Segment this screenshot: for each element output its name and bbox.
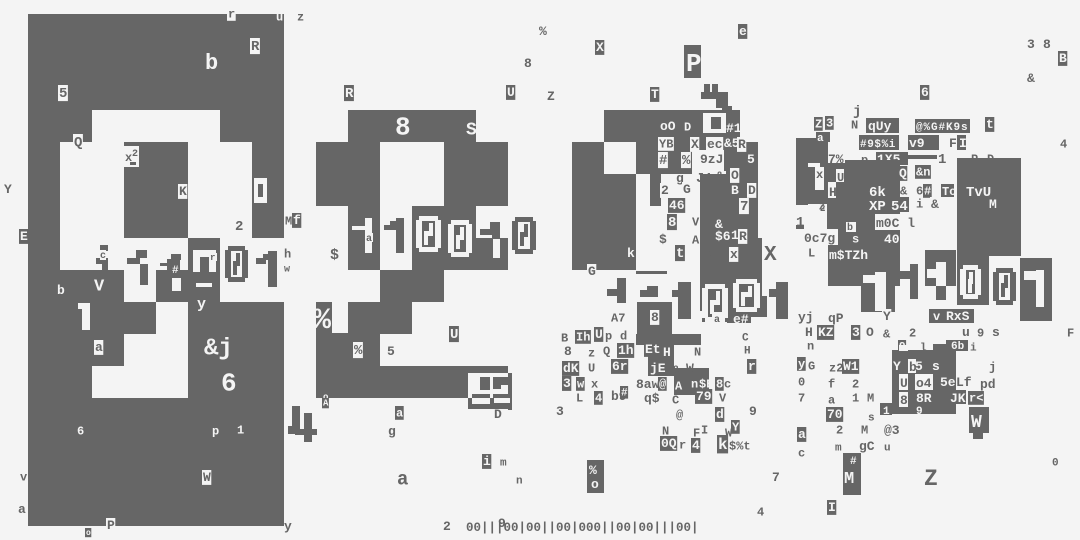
svg-text:h: h — [284, 247, 291, 261]
svg-text:ec: ec — [707, 137, 723, 152]
svg-text:1: 1 — [731, 228, 739, 243]
svg-text:Ih: Ih — [576, 330, 590, 344]
svg-text:8: 8 — [668, 215, 676, 231]
svg-text:6: 6 — [221, 368, 237, 398]
svg-text:9zJ: 9zJ — [700, 152, 723, 167]
svg-text:dK: dK — [563, 361, 579, 376]
svg-text:r: r — [748, 359, 756, 374]
svg-text:$%t: $%t — [729, 439, 751, 453]
svg-text:0: 0 — [798, 375, 805, 389]
svg-text:w: w — [577, 377, 585, 391]
svg-text:S: S — [466, 121, 477, 141]
svg-text:2: 2 — [661, 183, 669, 198]
svg-text:k: k — [718, 436, 728, 454]
svg-text:i: i — [483, 454, 491, 469]
svg-text:1: 1 — [938, 152, 946, 168]
svg-text:a: a — [817, 133, 824, 145]
svg-text:r<: r< — [969, 391, 983, 405]
svg-text:8: 8 — [716, 377, 723, 391]
svg-text:x: x — [816, 168, 823, 182]
svg-text:e: e — [739, 24, 747, 39]
svg-text:4: 4 — [692, 438, 700, 453]
svg-text:#: # — [924, 184, 931, 198]
svg-text:&: & — [1027, 71, 1035, 86]
svg-text:4: 4 — [1060, 137, 1067, 151]
svg-text:8aw: 8aw — [636, 377, 660, 392]
svg-text:To: To — [942, 185, 956, 199]
svg-text:M: M — [285, 214, 292, 228]
svg-text:u: u — [884, 443, 891, 455]
svg-text:#: # — [621, 388, 628, 400]
svg-text:c: c — [798, 446, 805, 460]
svg-text:A: A — [675, 379, 683, 393]
svg-text:m: m — [500, 458, 507, 470]
svg-text:c: c — [724, 377, 731, 391]
svg-text:0: 0 — [1052, 458, 1059, 470]
svg-text:Z: Z — [815, 117, 822, 131]
svg-text:b: b — [57, 283, 65, 298]
svg-text:#: # — [659, 153, 667, 169]
svg-text:q$: q$ — [644, 391, 660, 406]
svg-text:gC: gC — [859, 439, 875, 454]
svg-text:X: X — [691, 137, 699, 152]
svg-text:M: M — [867, 391, 874, 405]
svg-text:3: 3 — [1027, 37, 1035, 52]
svg-text:G: G — [683, 182, 691, 197]
svg-text:W: W — [971, 413, 982, 433]
svg-text:Z: Z — [924, 466, 938, 492]
svg-text:7: 7 — [740, 199, 748, 215]
svg-text:U: U — [900, 376, 908, 391]
svg-text:#1: #1 — [726, 121, 742, 136]
svg-text:XP: XP — [869, 199, 886, 215]
svg-text:X: X — [764, 244, 777, 267]
svg-text:@3: @3 — [884, 423, 900, 438]
svg-text:O: O — [731, 168, 739, 183]
svg-text:3: 3 — [563, 376, 571, 391]
svg-text:m: m — [835, 443, 842, 455]
svg-text:7: 7 — [798, 391, 805, 405]
svg-text:R: R — [738, 137, 746, 152]
svg-text:r: r — [228, 7, 235, 21]
svg-text:Z: Z — [819, 203, 825, 214]
svg-text:KZ: KZ — [818, 325, 834, 340]
svg-text:U: U — [837, 171, 844, 185]
svg-text:p: p — [605, 329, 612, 343]
svg-text:p: p — [212, 424, 219, 438]
svg-text:H: H — [744, 346, 751, 358]
svg-text:P: P — [107, 518, 115, 533]
svg-text:M: M — [844, 470, 854, 489]
svg-text:8: 8 — [900, 393, 908, 408]
svg-text:E: E — [20, 229, 28, 244]
svg-text:f: f — [293, 213, 301, 228]
svg-text:T: T — [651, 87, 659, 102]
svg-text:k: k — [627, 246, 635, 261]
svg-text:%: % — [682, 153, 691, 169]
svg-text:o4: o4 — [916, 376, 932, 391]
svg-text:r: r — [679, 438, 686, 452]
svg-text:d: d — [620, 329, 627, 343]
svg-text:40: 40 — [884, 232, 900, 247]
svg-text:Y: Y — [893, 359, 901, 374]
svg-text:yj: yj — [798, 310, 814, 325]
svg-text:v: v — [933, 310, 940, 324]
svg-text:B: B — [1059, 51, 1067, 66]
svg-text:@: @ — [676, 408, 683, 422]
svg-text:1: 1 — [237, 423, 244, 437]
svg-text:%: % — [589, 463, 597, 478]
svg-text:#: # — [172, 265, 179, 277]
svg-text:5: 5 — [59, 86, 67, 102]
svg-text:i: i — [970, 343, 977, 355]
svg-text:5: 5 — [915, 359, 923, 374]
svg-text:y: y — [798, 357, 805, 371]
svg-text:Et: Et — [645, 342, 661, 357]
svg-text:qP: qP — [828, 311, 844, 326]
svg-text:a: a — [828, 393, 835, 407]
svg-text:c: c — [100, 251, 106, 262]
svg-text:B: B — [561, 331, 568, 345]
svg-text:f: f — [828, 377, 835, 391]
svg-text:A: A — [692, 233, 700, 247]
svg-text:z: z — [588, 346, 595, 360]
svg-text:3: 3 — [852, 325, 860, 340]
svg-text:9: 9 — [749, 404, 757, 419]
svg-text:$: $ — [659, 232, 667, 247]
svg-text:M: M — [861, 423, 868, 437]
svg-text:y: y — [197, 296, 206, 313]
svg-text:R: R — [345, 86, 354, 102]
svg-text:2: 2 — [836, 423, 843, 437]
svg-text:V: V — [94, 278, 105, 297]
svg-text:O: O — [866, 325, 874, 340]
svg-text:v9: v9 — [909, 136, 925, 151]
svg-text:G: G — [588, 264, 596, 279]
svg-text:Q: Q — [603, 344, 610, 358]
svg-text:v: v — [20, 470, 27, 484]
svg-text:70: 70 — [827, 407, 843, 422]
svg-text:U: U — [450, 327, 458, 343]
svg-text:B: B — [731, 183, 739, 198]
svg-text:P: P — [686, 49, 702, 79]
svg-text:a: a — [798, 427, 806, 442]
svg-text:JK: JK — [950, 391, 966, 406]
svg-text:6: 6 — [916, 184, 923, 198]
svg-text:8R: 8R — [916, 391, 932, 406]
svg-text:9: 9 — [916, 406, 923, 418]
svg-text:U: U — [507, 85, 515, 100]
svg-text:d: d — [716, 407, 724, 422]
svg-text:#9$%i: #9$%i — [860, 139, 896, 151]
svg-text:D: D — [684, 120, 691, 134]
svg-text:A: A — [323, 399, 329, 409]
svg-text:o: o — [591, 477, 599, 492]
svg-text:1h: 1h — [618, 343, 634, 358]
svg-text:7: 7 — [772, 470, 780, 485]
svg-text:&j: &j — [204, 336, 233, 363]
svg-text:2: 2 — [852, 377, 859, 391]
svg-text:2: 2 — [708, 248, 715, 262]
svg-text:8: 8 — [651, 310, 659, 325]
svg-text:t: t — [986, 117, 994, 132]
svg-text:F: F — [1067, 326, 1074, 340]
svg-text:%: % — [313, 304, 332, 338]
svg-text:&n: &n — [916, 165, 930, 179]
svg-text:C: C — [672, 393, 679, 407]
svg-text:6r: 6r — [612, 359, 628, 374]
svg-text:8: 8 — [564, 344, 572, 359]
svg-text:H: H — [805, 325, 813, 340]
svg-text:6: 6 — [921, 85, 929, 100]
svg-text:a: a — [95, 340, 103, 355]
svg-text:n: n — [807, 339, 814, 353]
svg-text:V: V — [692, 215, 700, 229]
svg-text:a: a — [396, 406, 403, 420]
svg-text:2: 2 — [235, 219, 243, 235]
svg-text:2: 2 — [443, 519, 451, 534]
svg-text:0Q: 0Q — [661, 436, 677, 451]
svg-text:8: 8 — [395, 112, 411, 142]
svg-text:#: # — [850, 456, 857, 468]
svg-text:5: 5 — [387, 344, 395, 359]
svg-text:Q: Q — [899, 166, 907, 181]
svg-text:U: U — [595, 327, 603, 342]
svg-text:L: L — [808, 246, 815, 260]
svg-text:M: M — [989, 197, 997, 212]
svg-text:e#: e# — [733, 312, 749, 327]
svg-text:u: u — [276, 10, 283, 24]
svg-text:H: H — [663, 345, 671, 360]
svg-text:N: N — [851, 118, 858, 132]
svg-text:6: 6 — [77, 424, 84, 438]
svg-text:Q: Q — [74, 135, 82, 151]
svg-text:L: L — [576, 391, 583, 405]
svg-text:m0C l: m0C l — [876, 216, 915, 231]
svg-text:z2: z2 — [829, 361, 843, 375]
svg-text:$6: $6 — [715, 229, 731, 244]
svg-text:5: 5 — [747, 152, 755, 167]
svg-text:H: H — [829, 185, 837, 200]
svg-text:00|||00|00||00|000||00|00|||00: 00|||00|00||00|000||00|00|||00| — [466, 521, 699, 535]
svg-text:C: C — [742, 333, 749, 345]
svg-text:A7: A7 — [611, 311, 625, 325]
svg-text:X: X — [596, 40, 604, 55]
svg-text:&: & — [716, 169, 724, 183]
svg-text:oO: oO — [660, 119, 676, 134]
svg-text:Lf: Lf — [956, 375, 972, 390]
svg-text:D: D — [494, 407, 502, 422]
svg-text:o: o — [86, 529, 91, 538]
svg-text:N: N — [694, 345, 701, 359]
svg-text:@: @ — [659, 377, 666, 391]
svg-text:W: W — [203, 470, 211, 485]
svg-text:&: & — [931, 197, 939, 212]
svg-text:5e: 5e — [940, 375, 956, 390]
svg-text:a: a — [366, 234, 372, 245]
svg-text:@%G#K9s: @%G#K9s — [916, 122, 969, 134]
svg-text:V: V — [719, 391, 727, 405]
svg-text:a: a — [397, 468, 408, 490]
svg-text:2: 2 — [132, 149, 138, 160]
svg-text:jE: jE — [650, 361, 666, 376]
svg-text:I: I — [959, 136, 967, 151]
svg-text:6b: 6b — [951, 341, 965, 353]
svg-text:&: & — [883, 327, 891, 341]
svg-text:R: R — [251, 39, 260, 55]
svg-text:D: D — [748, 183, 756, 198]
svg-text:t: t — [676, 246, 684, 262]
svg-text:R: R — [739, 229, 747, 244]
svg-text:J1: J1 — [696, 171, 713, 187]
svg-text:i: i — [916, 197, 923, 211]
svg-text:1: 1 — [883, 406, 890, 418]
svg-text:3: 3 — [826, 116, 833, 130]
svg-text:RxS: RxS — [946, 309, 970, 324]
svg-text:F: F — [949, 136, 957, 151]
svg-text:j: j — [989, 360, 996, 374]
svg-text:8: 8 — [1043, 37, 1051, 52]
svg-text:w: w — [284, 265, 290, 276]
svg-text:I: I — [701, 423, 708, 437]
svg-text:s: s — [992, 325, 1000, 340]
svg-text:u: u — [962, 325, 970, 340]
svg-text:s: s — [932, 359, 940, 374]
svg-text:%: % — [539, 24, 547, 39]
svg-text:G: G — [808, 359, 815, 373]
svg-text:4: 4 — [595, 391, 602, 405]
svg-text:U: U — [588, 361, 595, 375]
svg-text:y: y — [284, 519, 292, 534]
svg-text:0c7g: 0c7g — [804, 231, 835, 246]
svg-text:79: 79 — [696, 389, 712, 404]
svg-text:Y: Y — [732, 420, 740, 434]
svg-text:Y: Y — [883, 309, 891, 324]
svg-text:%: % — [354, 343, 363, 359]
svg-text:W: W — [686, 361, 694, 376]
svg-text:1: 1 — [852, 391, 859, 405]
svg-text:pd: pd — [980, 377, 996, 392]
svg-text:4: 4 — [757, 505, 764, 519]
svg-text:9: 9 — [977, 326, 984, 340]
svg-text:z: z — [297, 10, 304, 24]
svg-text:8: 8 — [524, 56, 532, 71]
svg-text:3: 3 — [556, 404, 564, 419]
svg-text:n: n — [516, 476, 523, 488]
svg-text:b: b — [205, 51, 218, 76]
svg-text:TvU: TvU — [966, 185, 991, 201]
svg-text:$: $ — [330, 247, 339, 264]
svg-text:m$TZh: m$TZh — [829, 248, 868, 263]
svg-text:&: & — [900, 184, 908, 198]
svg-text:54: 54 — [891, 199, 908, 215]
svg-text:a: a — [18, 502, 26, 517]
svg-text:x: x — [730, 247, 738, 262]
svg-text:W1: W1 — [843, 359, 859, 374]
svg-text:Y: Y — [4, 182, 12, 197]
svg-text:K: K — [179, 184, 187, 199]
svg-text:5: 5 — [169, 325, 177, 340]
svg-text:g: g — [388, 424, 396, 439]
svg-text:&: & — [672, 363, 680, 378]
svg-text:YB: YB — [659, 137, 673, 151]
svg-text:x: x — [591, 377, 598, 391]
svg-text:I: I — [828, 500, 836, 515]
svg-text:qUy: qUy — [868, 119, 892, 134]
svg-text:s: s — [868, 413, 875, 425]
svg-text:a: a — [714, 315, 720, 326]
svg-text:r: r — [210, 253, 215, 263]
svg-text:Z: Z — [547, 89, 555, 104]
svg-text:46: 46 — [669, 198, 685, 213]
svg-text:s: s — [852, 232, 859, 246]
svg-text:2: 2 — [909, 326, 916, 340]
